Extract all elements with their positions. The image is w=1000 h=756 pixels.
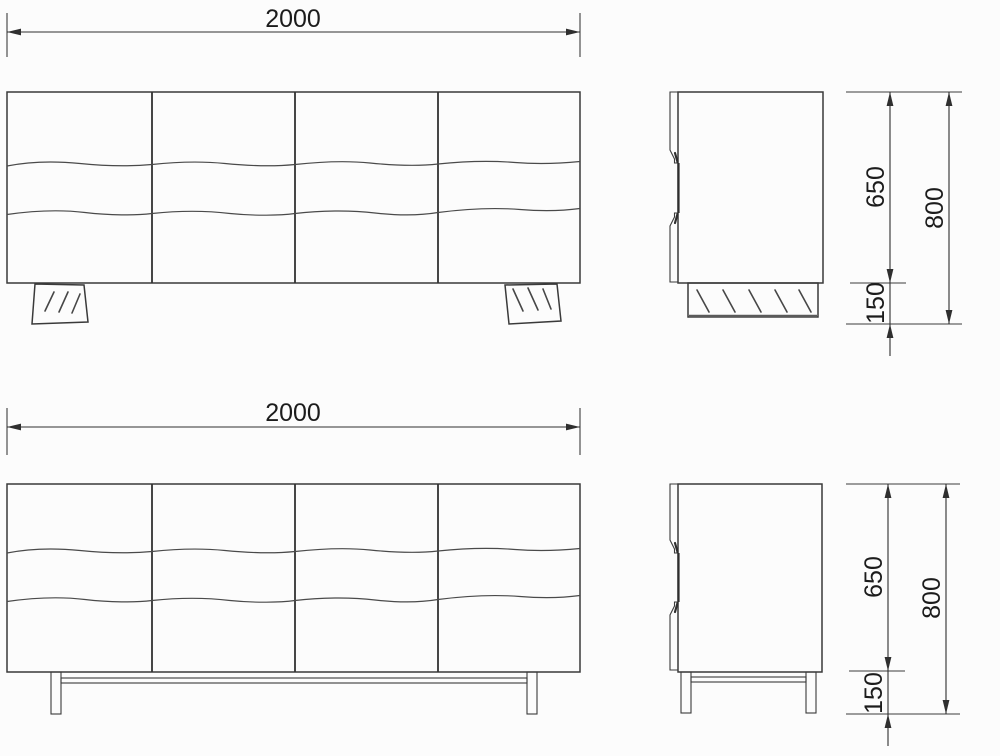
arrowhead-down-icon	[946, 310, 953, 324]
height-dimensions-leg-variant: 650 150 800	[846, 484, 960, 746]
leg-right	[527, 672, 537, 714]
hatch-lines	[697, 290, 811, 312]
leg-left	[51, 672, 61, 714]
height-dimensions-plinth-variant: 650 150 800	[846, 92, 962, 356]
arrowhead-up-icon	[946, 92, 953, 106]
grip-notch-lower-icon	[675, 214, 678, 223]
width-dimension-label: 2000	[265, 5, 321, 33]
sideboard-dimension-drawing: 2000	[0, 0, 1000, 756]
cabinet-side-body	[678, 92, 823, 283]
arrowhead-down-icon	[943, 700, 950, 714]
front-view-leg-variant: 2000	[7, 399, 580, 714]
base-height-label: 150	[860, 672, 888, 714]
hatch-lines	[45, 292, 80, 313]
side-view-plinth-variant: 650 150 800	[670, 92, 962, 356]
width-dimension-leg-variant: 2000	[7, 399, 580, 455]
arrowhead-up-icon	[885, 484, 892, 498]
plinth-base	[688, 283, 818, 317]
arrowhead-right-icon	[566, 424, 580, 431]
live-edge-gap-waves	[7, 161, 580, 215]
arrowhead-down-icon	[885, 657, 892, 671]
side-view-leg-variant: 650 150 800	[670, 484, 960, 746]
plinth-foot-left	[32, 284, 88, 324]
arrowhead-left-icon	[7, 424, 21, 431]
width-dimension-label: 2000	[265, 399, 321, 427]
cabinet-body	[7, 92, 580, 283]
hatch-lines	[513, 288, 551, 311]
plinth-foot-right	[505, 284, 561, 324]
door-dividers	[152, 484, 438, 672]
arrowhead-up-icon	[943, 484, 950, 498]
door-edge-profile	[670, 92, 679, 282]
arrowhead-down-icon	[887, 269, 894, 283]
body-height-label: 650	[862, 166, 890, 208]
leg-back	[806, 672, 816, 713]
grip-notch-upper-icon	[675, 543, 678, 552]
live-edge-gap-waves	[7, 548, 580, 602]
front-view-plinth-variant: 2000	[7, 5, 580, 324]
leg-frame	[681, 672, 816, 713]
width-dimension-plinth-variant: 2000	[7, 5, 580, 57]
cabinet-side-body	[678, 484, 822, 672]
arrowhead-up-icon	[887, 92, 894, 106]
arrowhead-left-icon	[7, 29, 21, 36]
stretcher-rail	[691, 677, 806, 682]
grip-notch-lower-icon	[675, 603, 678, 612]
total-height-label: 800	[918, 577, 946, 619]
leg-front	[681, 672, 691, 713]
door-dividers	[152, 92, 438, 283]
cabinet-body	[7, 484, 580, 672]
leg-frame	[51, 672, 537, 714]
base-height-label: 150	[862, 282, 890, 324]
arrowhead-up-icon	[887, 324, 894, 338]
upper-door-edge	[670, 92, 678, 163]
arrowhead-up-icon	[885, 714, 892, 728]
body-height-label: 650	[860, 556, 888, 598]
technical-drawing-canvas: 2000	[0, 0, 1000, 756]
total-height-label: 800	[921, 187, 949, 229]
grip-notch-upper-icon	[675, 153, 678, 162]
arrowhead-right-icon	[566, 29, 580, 36]
door-edge-profile	[670, 484, 679, 670]
stretcher-rail	[61, 678, 527, 683]
